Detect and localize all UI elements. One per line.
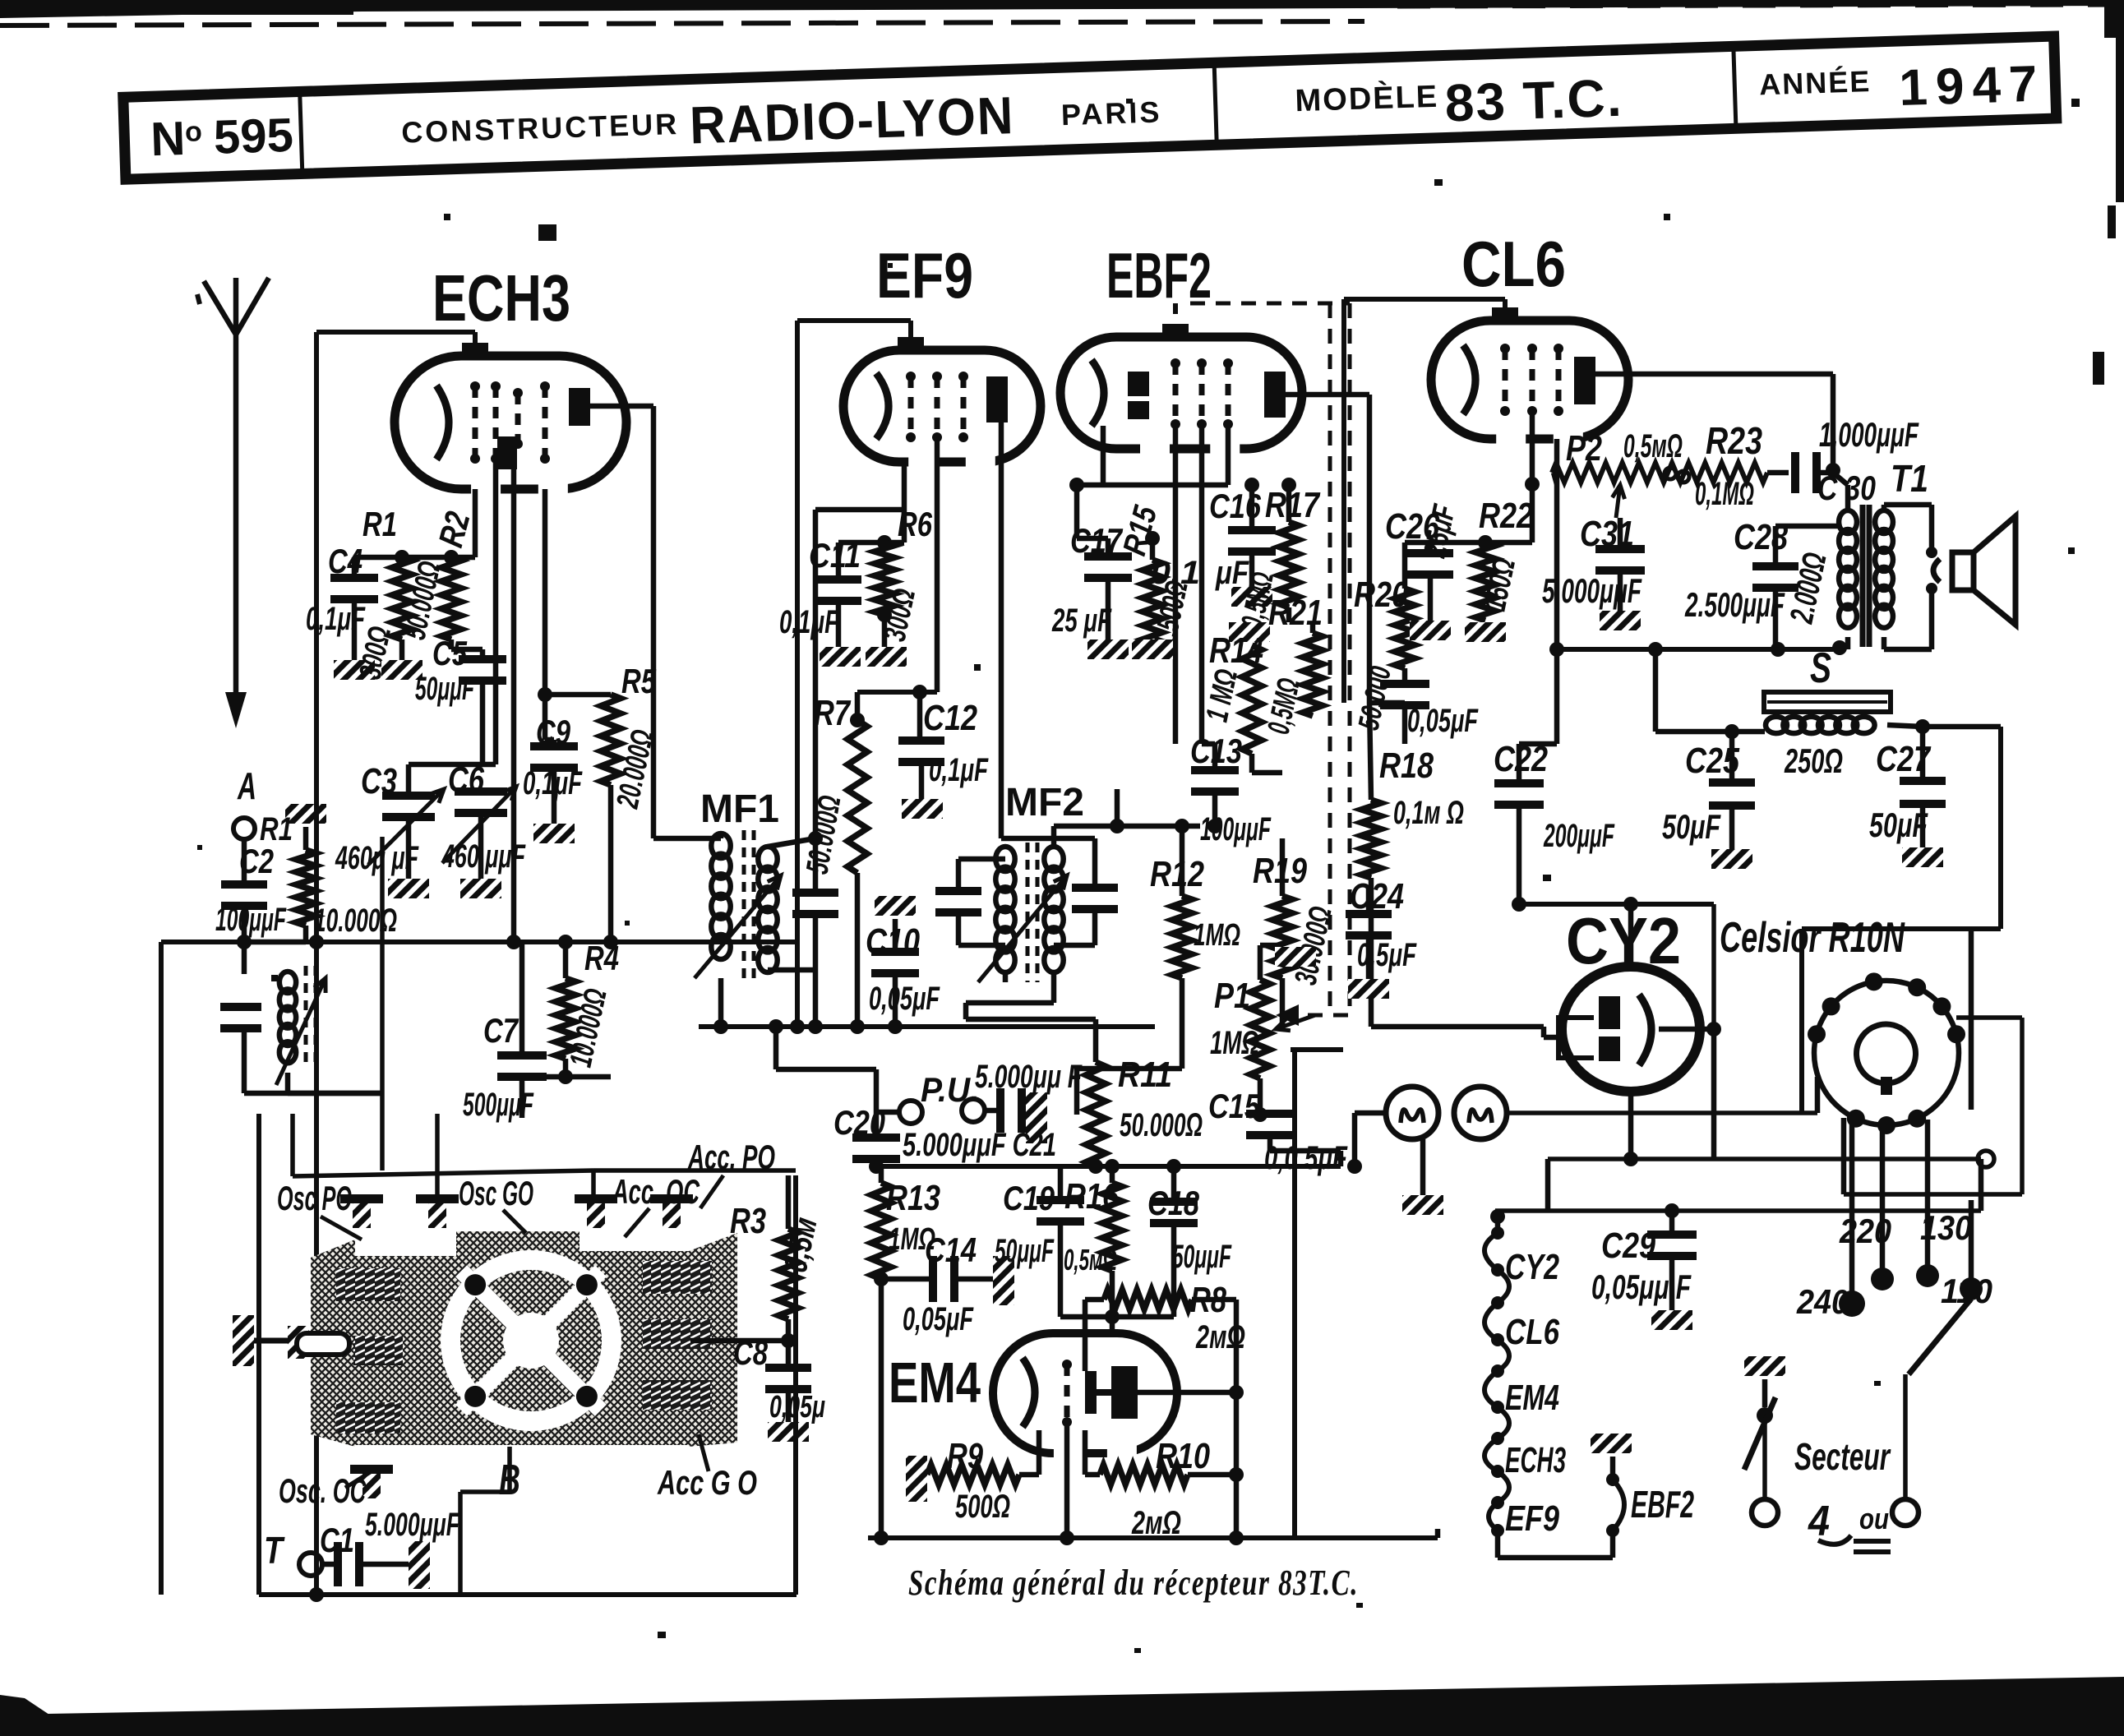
svg-text:C28: C28 [1734, 517, 1788, 557]
svg-text:10.000Ω: 10.000Ω [314, 903, 397, 939]
svg-text:No595: No595 [150, 108, 293, 166]
svg-text:R3: R3 [730, 1201, 766, 1241]
svg-text:100μμF: 100μμF [215, 902, 287, 938]
svg-text:25 μF: 25 μF [1051, 603, 1112, 639]
svg-text:0,1м Ω: 0,1м Ω [1393, 795, 1464, 831]
svg-text:5.000μμ F: 5.000μμ F [975, 1059, 1083, 1095]
svg-text:P.U.: P.U. [921, 1070, 979, 1109]
svg-text:EBF2: EBF2 [1631, 1483, 1694, 1526]
svg-text:5.000μμF C21: 5.000μμF C21 [903, 1127, 1056, 1163]
svg-text:50μF: 50μF [1869, 806, 1928, 844]
svg-text:EM4: EM4 [1505, 1378, 1559, 1418]
svg-text:4: 4 [1808, 1498, 1830, 1545]
svg-text:R1: R1 [260, 811, 293, 847]
svg-text:2.500μμF: 2.500μμF [1684, 585, 1785, 624]
svg-text:500μμF: 500μμF [463, 1087, 534, 1123]
svg-text:EF9: EF9 [876, 239, 973, 312]
svg-text:R22: R22 [1479, 496, 1533, 536]
svg-text:500Ω: 500Ω [955, 1489, 1010, 1525]
svg-text:1МΩ: 1МΩ [1210, 1025, 1259, 1061]
svg-text:CY2: CY2 [1505, 1247, 1559, 1287]
svg-text:Osc PO: Osc PO [277, 1179, 352, 1217]
svg-text:50μF: 50μF [1662, 807, 1721, 846]
svg-text:A: A [237, 764, 256, 807]
svg-text:0,05μF: 0,05μF [1407, 703, 1479, 739]
svg-text:1.000μμF: 1.000μμF [1819, 415, 1919, 454]
svg-text:50.000Ω: 50.000Ω [1120, 1107, 1203, 1143]
svg-text:Osc. OC: Osc. OC [279, 1471, 366, 1510]
svg-text:0,5мΩ: 0,5мΩ [1623, 428, 1683, 464]
svg-text:RADIO-LYON: RADIO-LYON [689, 85, 1015, 155]
svg-text:T: T [264, 1529, 285, 1572]
svg-text:EM4: EM4 [889, 1350, 981, 1415]
svg-text:Acc. OC: Acc. OC [612, 1172, 700, 1211]
svg-text:PARIS: PARIS [1060, 95, 1162, 132]
svg-text:R1: R1 [362, 505, 397, 543]
svg-text:0,05μF: 0,05μF [903, 1301, 974, 1337]
svg-text:C15: C15 [1208, 1087, 1261, 1125]
svg-text:R7: R7 [814, 693, 852, 733]
svg-text:C12: C12 [923, 698, 977, 738]
svg-text:50μμF: 50μμF [1172, 1239, 1232, 1275]
svg-text:0,1μF: 0,1μF [523, 765, 583, 801]
svg-text:T1: T1 [1891, 457, 1928, 500]
svg-text:EF9: EF9 [1505, 1498, 1559, 1539]
svg-text:R11: R11 [1118, 1055, 1172, 1095]
svg-text:MF2: MF2 [1005, 781, 1084, 824]
svg-text:R18: R18 [1379, 746, 1434, 786]
svg-text:R12: R12 [1150, 854, 1204, 894]
svg-text:0,1μF: 0,1μF [779, 604, 839, 640]
svg-text:C8: C8 [733, 1333, 768, 1372]
svg-text:CL6: CL6 [1461, 228, 1566, 300]
svg-text:ou: ou [1859, 1502, 1889, 1535]
svg-text:0,05μF: 0,05μF [869, 981, 940, 1017]
svg-text:R13: R13 [886, 1178, 940, 1218]
svg-text:0,1μF: 0,1μF [929, 752, 989, 788]
svg-text:83 T.C.: 83 T.C. [1444, 68, 1624, 133]
svg-text:Osc GO: Osc GO [459, 1174, 533, 1212]
svg-text:R5: R5 [621, 662, 656, 700]
svg-text:ECH3: ECH3 [432, 261, 570, 335]
svg-text:MF1: MF1 [700, 787, 779, 831]
svg-text:1947: 1947 [1898, 55, 2046, 117]
svg-text:250Ω: 250Ω [1784, 741, 1843, 780]
svg-text:R6: R6 [898, 505, 932, 543]
svg-text:C2: C2 [239, 842, 274, 880]
svg-text:0,0 5μF: 0,0 5μF [1264, 1140, 1348, 1176]
svg-text:ECH3: ECH3 [1505, 1440, 1566, 1480]
svg-text:R23: R23 [1706, 419, 1762, 462]
svg-text:0,1МΩ: 0,1МΩ [1695, 476, 1754, 512]
svg-text:Schéma général du récepteur: Schéma général du récepteur 83T.C. [908, 1563, 1359, 1603]
svg-text:CL6: CL6 [1505, 1312, 1559, 1352]
svg-text:5.000μμF: 5.000μμF [365, 1507, 460, 1543]
svg-text:P1: P1 [1214, 976, 1250, 1016]
svg-text:0,5мΩ: 0,5мΩ [1064, 1243, 1117, 1277]
svg-text:C7: C7 [483, 1011, 519, 1050]
svg-text:Celsior R10N: Celsior R10N [1720, 914, 1905, 962]
svg-text:MODÈLE: MODÈLE [1295, 78, 1439, 118]
svg-text:ANNÉE: ANNÉE [1759, 64, 1872, 101]
svg-text:Secteur: Secteur [1794, 1435, 1891, 1478]
svg-text:0,05μμ F: 0,05μμ F [1591, 1267, 1692, 1306]
svg-text:EBF2: EBF2 [1106, 239, 1212, 312]
svg-text:200μμF: 200μμF [1543, 818, 1615, 854]
svg-text:1МΩ: 1МΩ [1194, 918, 1240, 953]
svg-text:50μμF: 50μμF [995, 1233, 1055, 1269]
svg-text:50μμF: 50μμF [415, 671, 475, 707]
svg-text:C11: C11 [809, 536, 861, 575]
svg-text:S: S [1810, 644, 1831, 692]
svg-text:C5: C5 [432, 634, 467, 672]
